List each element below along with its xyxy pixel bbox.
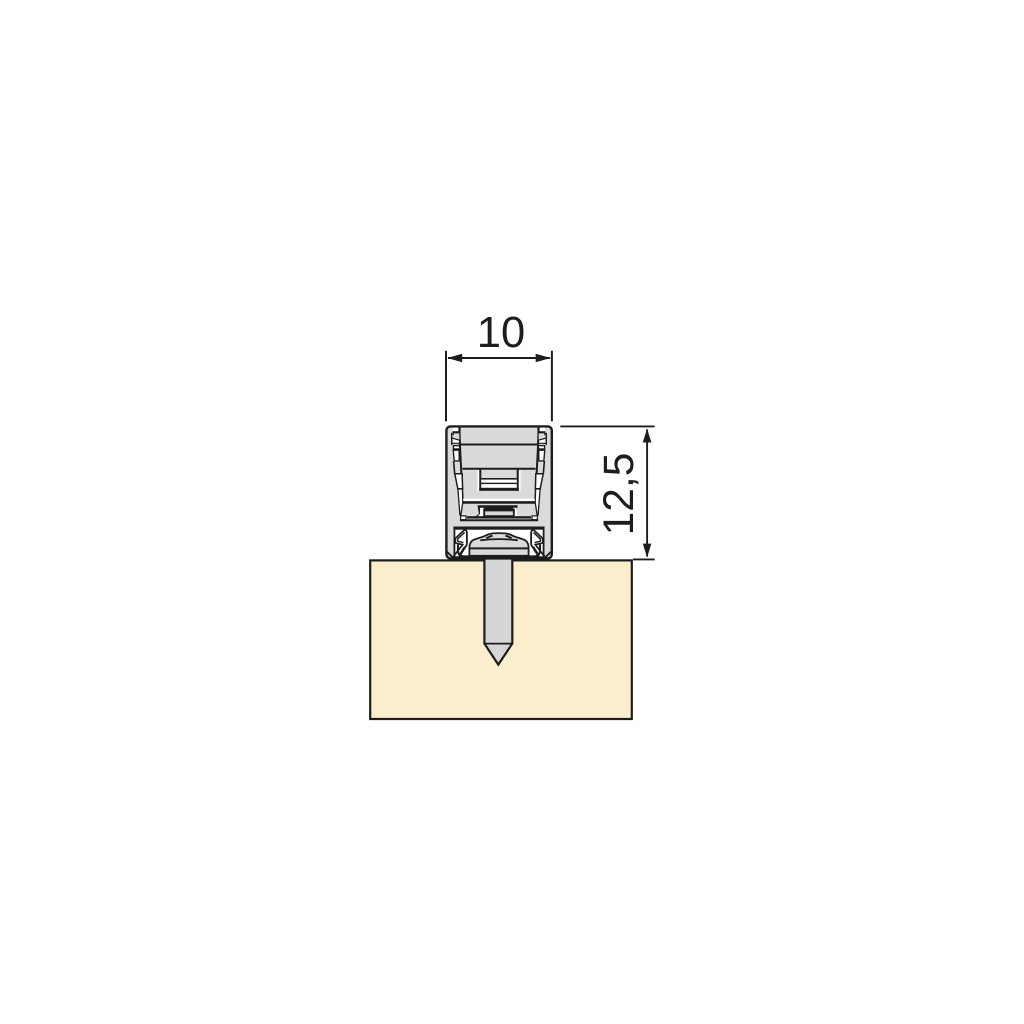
- svg-text:12,5: 12,5: [596, 453, 643, 536]
- svg-text:10: 10: [477, 309, 525, 357]
